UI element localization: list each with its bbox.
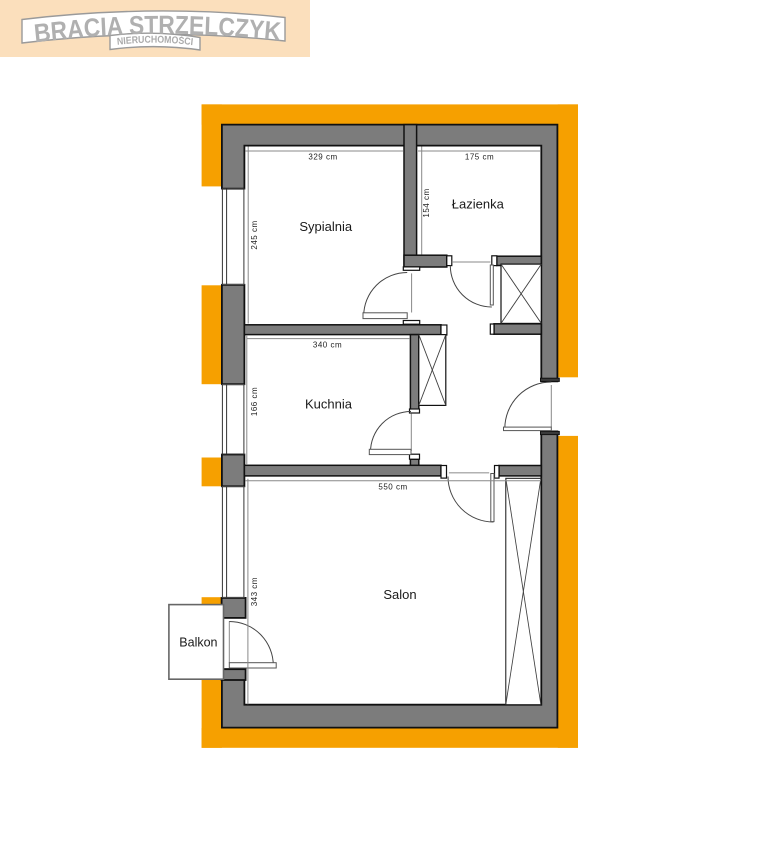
svg-text:175 cm: 175 cm <box>465 153 494 162</box>
svg-text:Sypialnia: Sypialnia <box>299 219 353 234</box>
svg-text:Balkon: Balkon <box>179 636 217 650</box>
svg-text:550 cm: 550 cm <box>378 482 407 491</box>
svg-text:340 cm: 340 cm <box>313 340 342 349</box>
svg-text:Kuchnia: Kuchnia <box>305 397 353 412</box>
svg-text:245 cm: 245 cm <box>250 220 259 249</box>
svg-text:166 cm: 166 cm <box>250 387 259 416</box>
svg-text:154 cm: 154 cm <box>422 188 431 217</box>
svg-text:343 cm: 343 cm <box>250 577 259 606</box>
svg-text:Salon: Salon <box>383 587 416 602</box>
svg-text:Łazienka: Łazienka <box>452 197 505 212</box>
svg-text:329 cm: 329 cm <box>308 153 337 162</box>
